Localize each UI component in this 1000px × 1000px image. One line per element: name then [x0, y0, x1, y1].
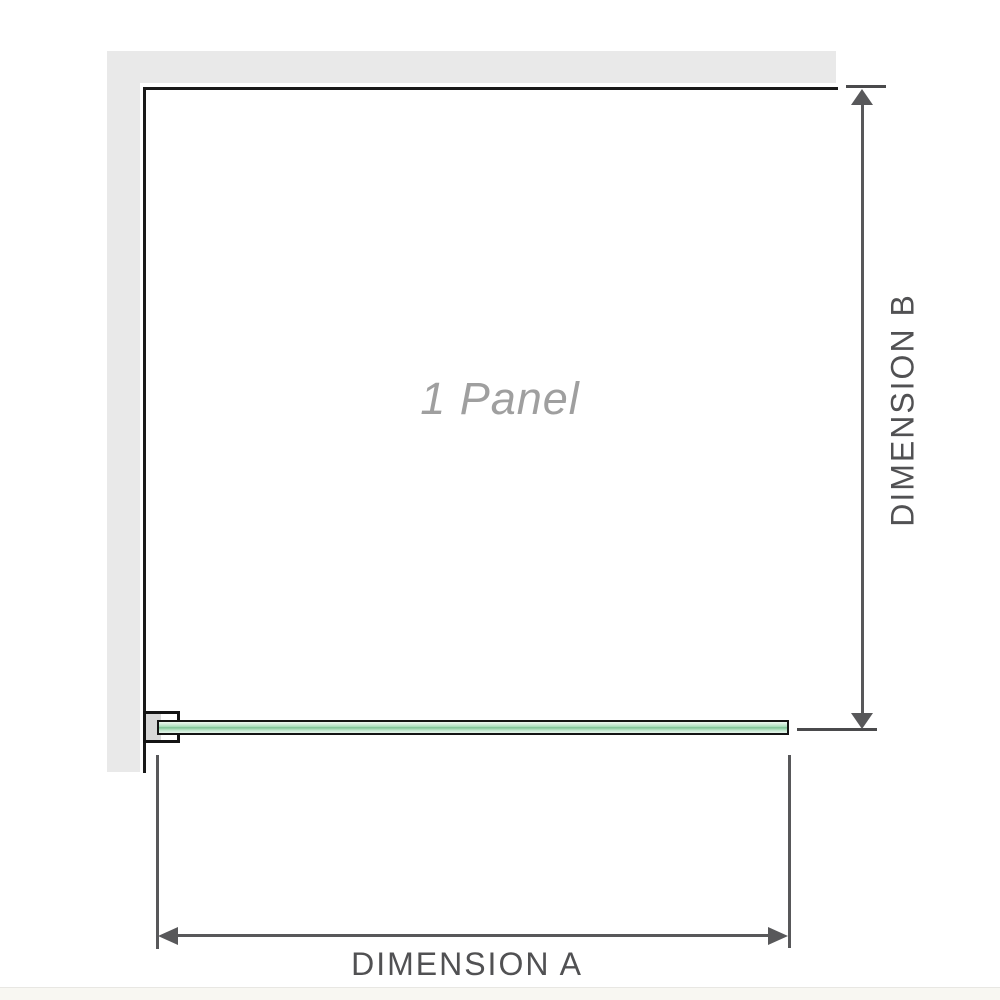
panel-outline: [143, 87, 838, 773]
dimension-b-label: DIMENSION B: [885, 293, 922, 527]
arrow-right-icon: [768, 927, 788, 945]
bottom-band: [0, 987, 1000, 1000]
dimension-a-right-extension: [788, 755, 791, 948]
arrow-up-icon: [851, 89, 873, 105]
dimension-diagram: 1 Panel DIMENSION B DIMENSION A: [0, 0, 1000, 1000]
dimension-b-line: [861, 96, 864, 716]
dimension-a-left-extension: [156, 755, 159, 949]
glass-panel: [157, 720, 789, 735]
wall-left: [107, 51, 140, 772]
dimension-b-top-tick: [846, 85, 886, 88]
dimension-a-label: DIMENSION A: [151, 946, 783, 983]
dimension-a-line: [164, 934, 782, 937]
panel-watermark-label: 1 Panel: [290, 373, 710, 425]
arrow-left-icon: [158, 927, 178, 945]
wall-top: [107, 51, 836, 83]
arrow-down-icon: [851, 713, 873, 729]
